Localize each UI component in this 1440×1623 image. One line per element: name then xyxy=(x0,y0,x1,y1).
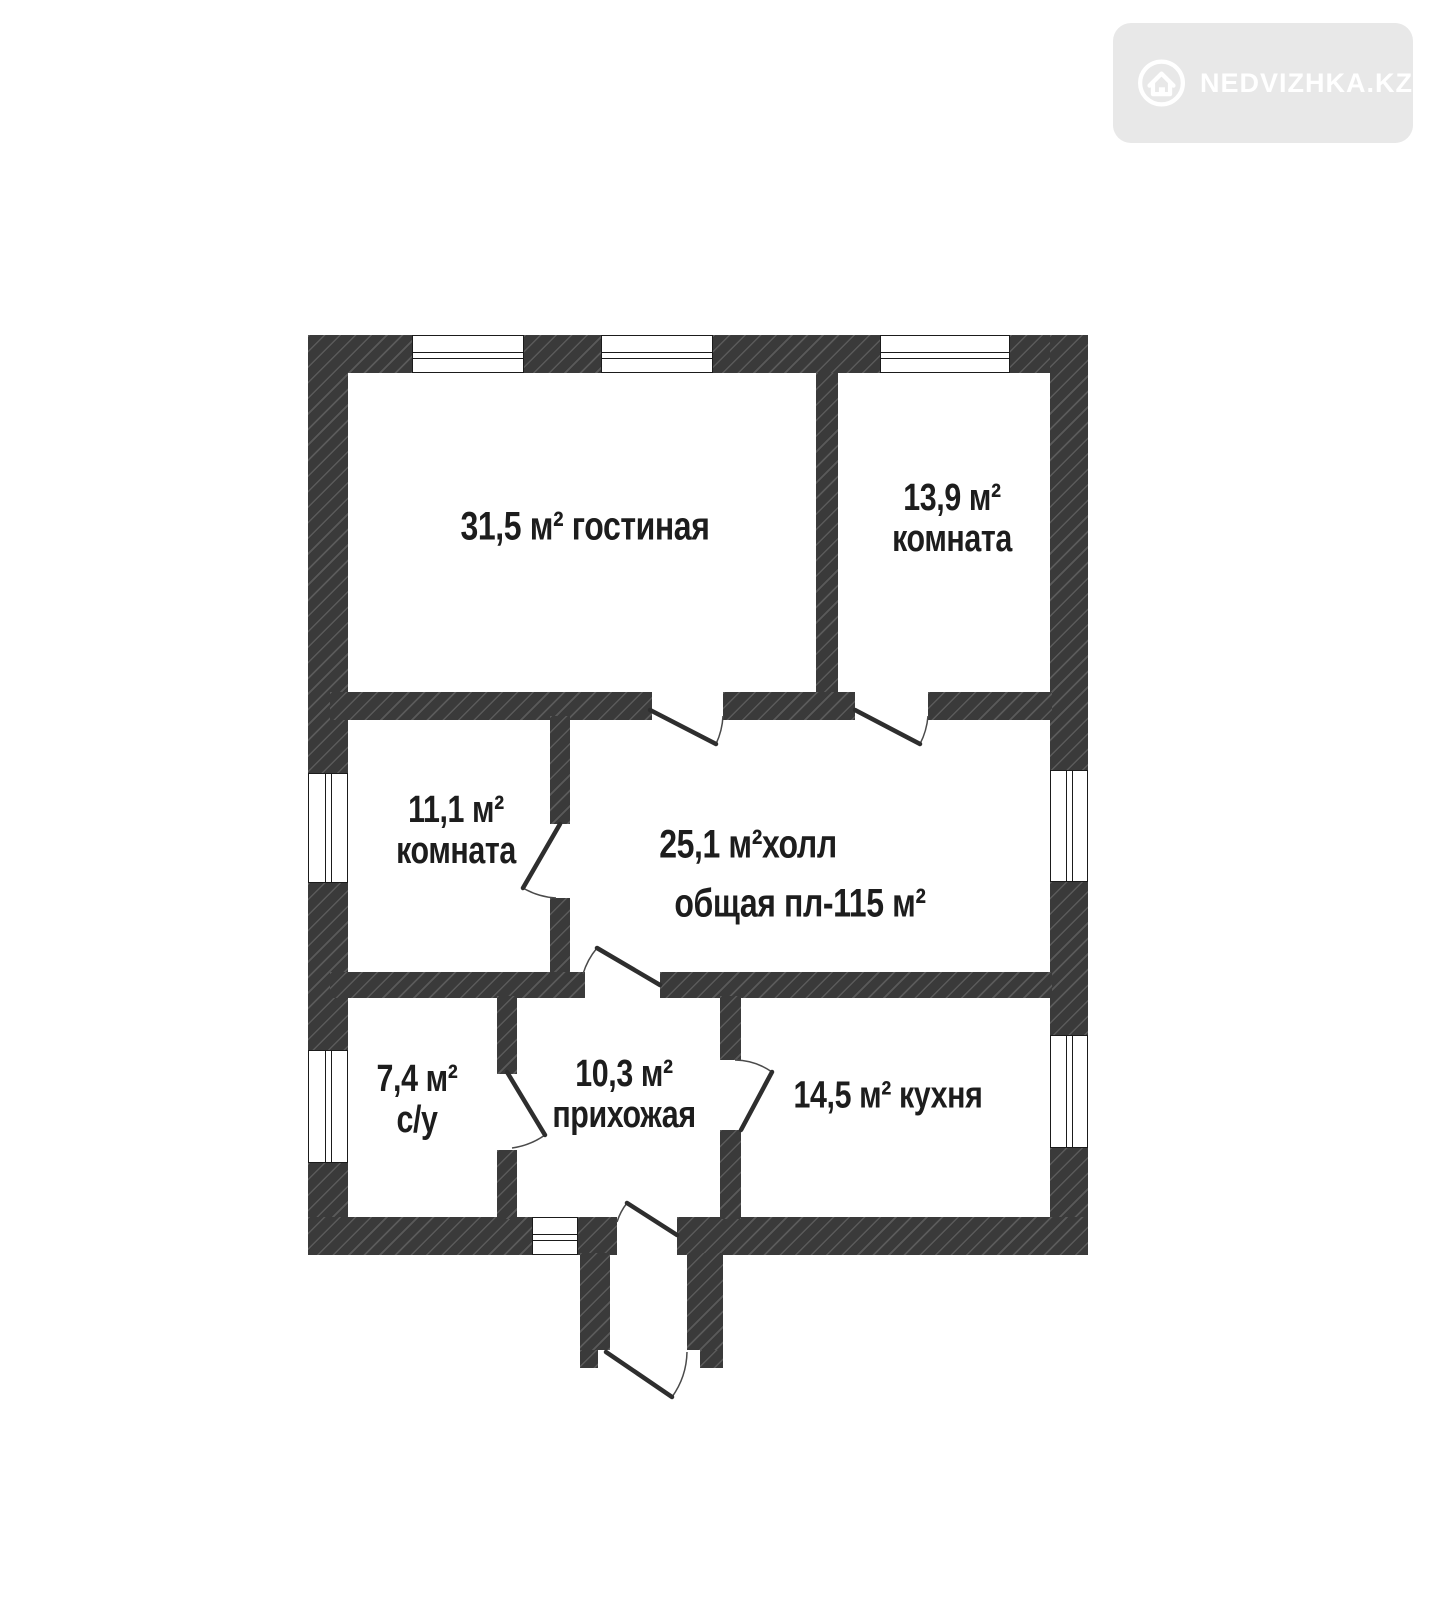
door-leaf xyxy=(597,948,660,985)
wall xyxy=(720,996,741,1060)
door-leaf xyxy=(855,710,920,744)
room-label-living: 31,5 м² гостиная xyxy=(461,505,710,548)
room-label-entry: 10,3 м² прихожая xyxy=(552,1054,695,1136)
door-arc xyxy=(583,948,597,974)
door-arc xyxy=(512,1135,545,1148)
room-area: 11,1 м² xyxy=(396,790,516,831)
room-name: с/у xyxy=(377,1100,458,1141)
window xyxy=(412,335,524,373)
wall xyxy=(1050,335,1088,770)
door-leaf xyxy=(741,1072,772,1130)
wall xyxy=(524,335,601,373)
wall xyxy=(497,996,517,1074)
wall xyxy=(550,898,570,974)
watermark-text: NEDVIZHKA.KZ xyxy=(1200,68,1413,99)
door-leaf xyxy=(627,1203,677,1235)
wall xyxy=(497,1150,517,1219)
room-label-bathroom: 7,4 м² с/у xyxy=(377,1059,458,1141)
door-arc xyxy=(920,716,928,744)
door-leaf xyxy=(650,710,716,744)
door-leaf xyxy=(523,824,560,888)
wall xyxy=(550,716,570,824)
wall xyxy=(816,373,838,694)
room-label-room-13-9: 13,9 м² комната xyxy=(892,478,1012,560)
room-area: 7,4 м² xyxy=(377,1059,458,1100)
watermark-badge: NEDVIZHKA.KZ xyxy=(1113,23,1413,143)
door-arc xyxy=(672,1352,687,1397)
window xyxy=(308,1050,348,1163)
wall xyxy=(330,972,585,998)
wall xyxy=(723,692,855,720)
room-name: комната xyxy=(396,831,516,872)
door-arc xyxy=(523,888,556,898)
room-area: 13,9 м² xyxy=(892,478,1012,519)
door-leaf xyxy=(606,1352,672,1397)
door-arc xyxy=(617,1203,627,1222)
room-label-kitchen: 14,5 м² кухня xyxy=(794,1075,983,1116)
doors-layer xyxy=(0,0,1440,1623)
wall xyxy=(1050,882,1088,1035)
wall xyxy=(308,883,348,1050)
window xyxy=(880,335,1010,373)
house-icon xyxy=(1135,52,1188,114)
door-arc xyxy=(735,1060,772,1072)
wall xyxy=(330,692,652,720)
window xyxy=(1050,770,1088,882)
wall xyxy=(928,692,1052,720)
window xyxy=(532,1217,578,1255)
door-arc xyxy=(716,716,723,744)
wall xyxy=(580,1253,610,1350)
room-area: 10,3 м² xyxy=(552,1054,695,1095)
window xyxy=(1050,1035,1088,1148)
floor-plan-page: NEDVIZHKA.KZ xyxy=(0,0,1440,1623)
room-label-room-11-1: 11,1 м² комната xyxy=(396,790,516,872)
wall xyxy=(700,1350,723,1368)
wall xyxy=(578,1217,617,1255)
room-label-hall: 25,1 м²холл xyxy=(659,823,837,866)
wall xyxy=(720,1130,741,1219)
wall xyxy=(308,1217,532,1255)
window xyxy=(601,335,713,373)
wall xyxy=(580,1350,598,1368)
door-leaf xyxy=(507,1072,545,1135)
wall xyxy=(677,1217,1088,1255)
room-name: комната xyxy=(892,519,1012,560)
total-area-label: общая пл-115 м² xyxy=(674,882,925,925)
wall xyxy=(660,972,1052,998)
wall xyxy=(713,335,880,373)
wall xyxy=(687,1253,723,1350)
window xyxy=(308,773,348,883)
room-name: прихожая xyxy=(552,1095,695,1136)
